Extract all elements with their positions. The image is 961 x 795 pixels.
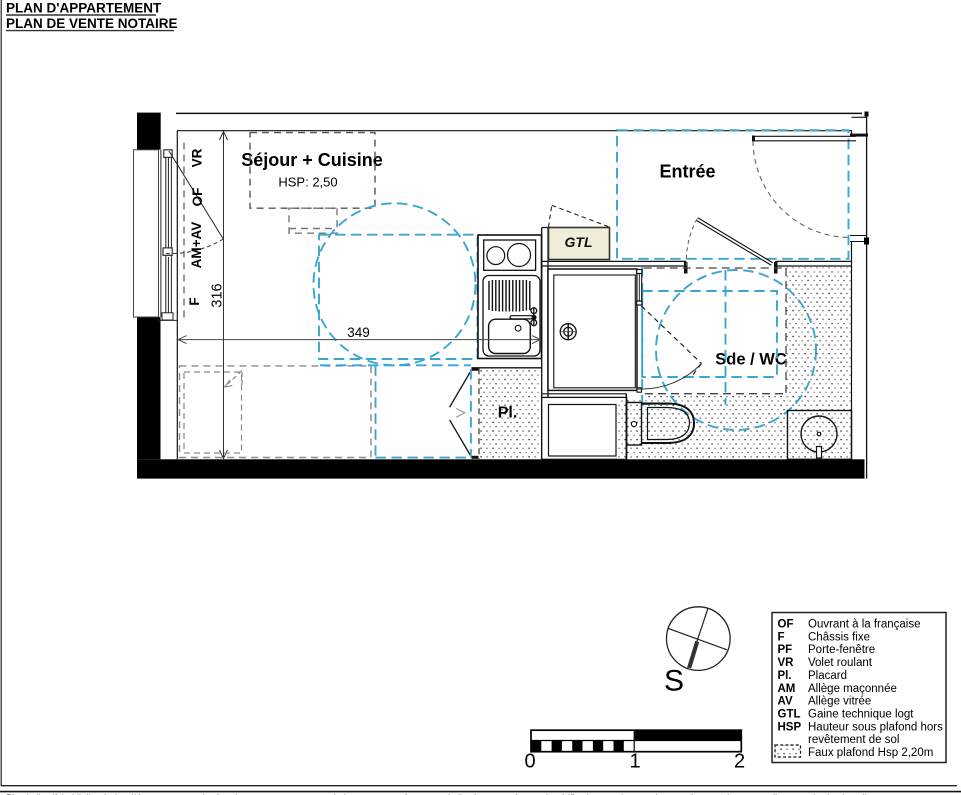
svg-text:HSP: 2,50: HSP: 2,50 (278, 174, 337, 189)
svg-text:Faux plafond Hsp 2,20m: Faux plafond Hsp 2,20m (808, 747, 933, 759)
svg-text:Châssis fixe: Châssis fixe (808, 631, 870, 643)
svg-text:OF: OF (778, 619, 794, 631)
svg-text:PLAN D'APPARTEMENT: PLAN D'APPARTEMENT (6, 1, 162, 16)
svg-text:349: 349 (347, 325, 370, 340)
svg-text:AM: AM (778, 683, 796, 695)
svg-text:AV: AV (778, 696, 793, 708)
svg-text:2: 2 (734, 751, 745, 773)
svg-text:Entrée: Entrée (659, 161, 715, 181)
svg-text:HSP: HSP (778, 721, 802, 733)
svg-text:GTL: GTL (565, 234, 593, 250)
svg-text:F: F (187, 297, 202, 305)
svg-text:AM+AV: AM+AV (189, 222, 204, 269)
svg-text:Allège maçonnée: Allège maçonnée (808, 683, 897, 695)
svg-text:316: 316 (210, 283, 226, 307)
svg-text:Hauteur sous plafond hors: Hauteur sous plafond hors (808, 721, 943, 733)
svg-text:Ouvrant à la française: Ouvrant à la française (808, 619, 921, 631)
svg-text:Allège vitrée: Allège vitrée (808, 696, 871, 708)
svg-text:S: S (664, 665, 684, 698)
svg-text:0: 0 (524, 751, 535, 773)
svg-text:PF: PF (778, 644, 793, 656)
svg-text:VR: VR (778, 657, 795, 669)
svg-text:VR: VR (190, 148, 205, 167)
svg-text:revêtement de sol: revêtement de sol (808, 734, 899, 746)
svg-text:Pl.: Pl. (778, 670, 792, 682)
svg-text:GTL: GTL (778, 709, 801, 721)
svg-text:PLAN DE VENTE NOTAIRE: PLAN DE VENTE NOTAIRE (6, 16, 178, 31)
svg-text:Placard: Placard (808, 670, 847, 682)
svg-text:OF: OF (190, 188, 205, 207)
svg-text:F: F (778, 631, 785, 643)
svg-text:Porte-fenêtre: Porte-fenêtre (808, 644, 875, 656)
svg-text:1: 1 (629, 751, 640, 773)
svg-text:Volet roulant: Volet roulant (808, 657, 873, 669)
svg-text:Séjour + Cuisine: Séjour + Cuisine (241, 150, 383, 170)
svg-text:Pl.: Pl. (498, 405, 518, 422)
svg-text:Gaine technique logt: Gaine technique logt (808, 709, 914, 721)
